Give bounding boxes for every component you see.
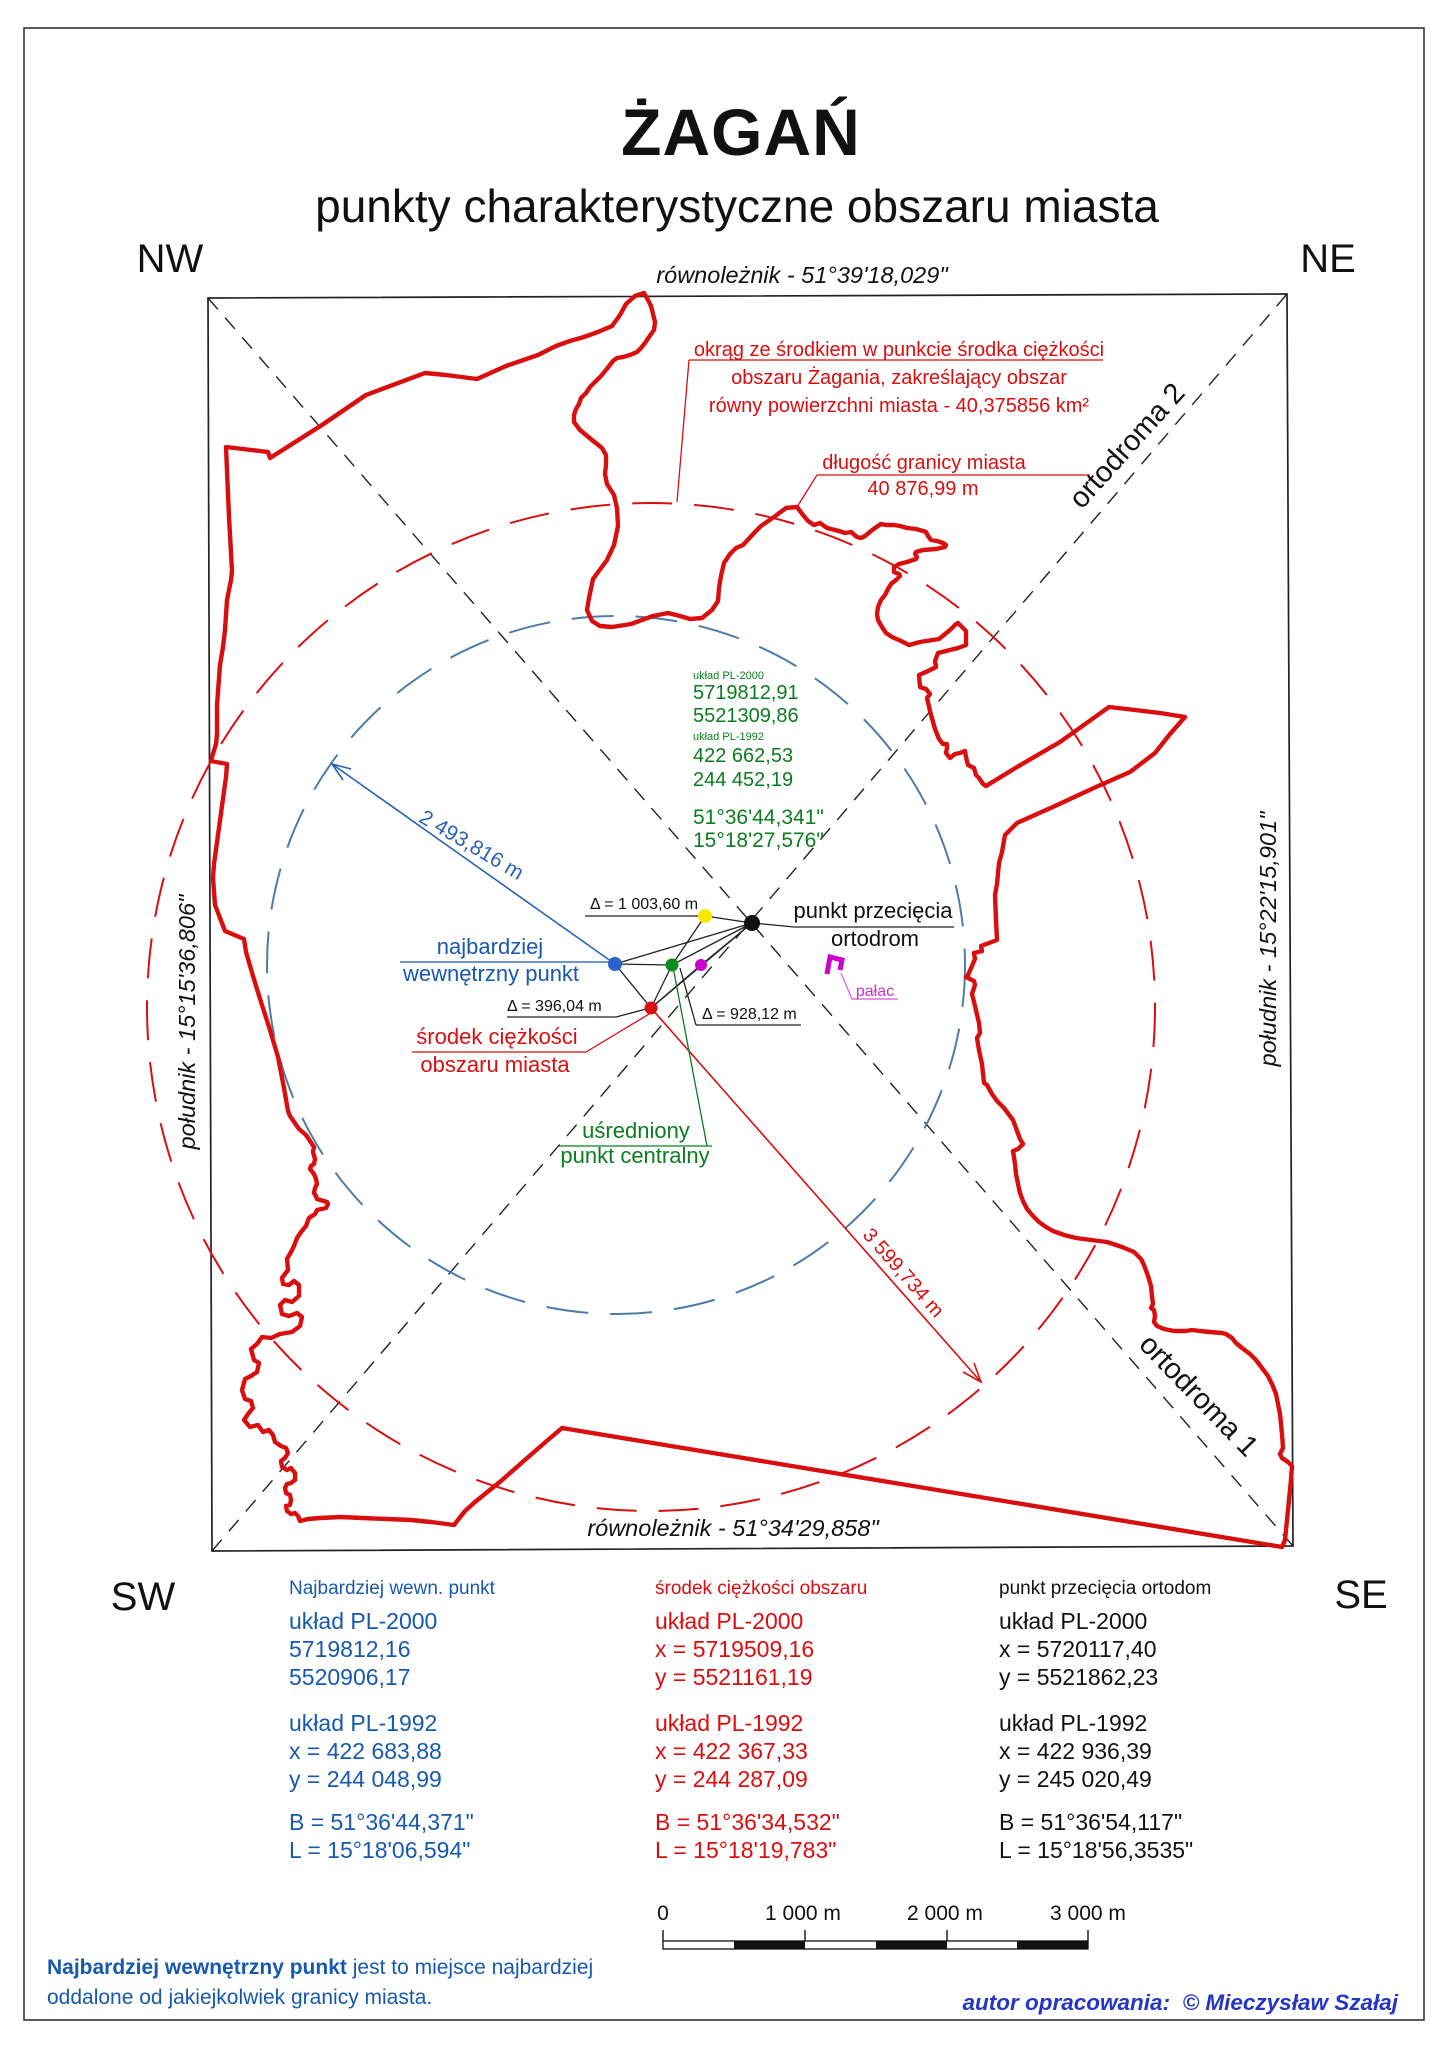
svg-text:x = 422 367,33: x = 422 367,33 [655, 1738, 808, 1764]
svg-text:układ PL-2000: układ PL-2000 [289, 1608, 437, 1634]
svg-text:x = 422 683,88: x = 422 683,88 [289, 1738, 442, 1764]
svg-text:B = 51°36'54,117": B = 51°36'54,117" [999, 1809, 1182, 1835]
svg-text:środek ciężkości: środek ciężkości [416, 1024, 577, 1049]
svg-text:5520906,17: 5520906,17 [289, 1664, 411, 1690]
svg-text:5521309,86: 5521309,86 [693, 705, 799, 727]
svg-text:Δ = 396,04 m: Δ = 396,04 m [507, 998, 602, 1015]
svg-text:ŻAGAŃ: ŻAGAŃ [621, 95, 861, 169]
svg-text:południk - 15°22'15,901": południk - 15°22'15,901" [1255, 810, 1281, 1067]
svg-text:układ PL-2000: układ PL-2000 [999, 1608, 1147, 1634]
svg-text:x = 422 936,39: x = 422 936,39 [999, 1738, 1152, 1764]
svg-text:okrąg ze środkiem w punkcie śr: okrąg ze środkiem w punkcie środka ciężk… [694, 339, 1104, 361]
svg-text:y = 5521862,23: y = 5521862,23 [999, 1664, 1158, 1690]
svg-text:długość granicy miasta: długość granicy miasta [822, 452, 1026, 474]
svg-text:SW: SW [111, 1575, 176, 1619]
svg-text:Najbardziej wewn. punkt: Najbardziej wewn. punkt [289, 1578, 496, 1599]
svg-text:równoleżnik - 51°34'29,858": równoleżnik - 51°34'29,858" [587, 1515, 880, 1541]
svg-text:422 662,53: 422 662,53 [693, 745, 793, 767]
svg-text:układ PL-1992: układ PL-1992 [693, 731, 764, 743]
svg-text:Δ = 1 003,60 m: Δ = 1 003,60 m [590, 896, 698, 913]
svg-text:0: 0 [657, 1902, 669, 1925]
svg-text:układ PL-1992: układ PL-1992 [289, 1710, 437, 1736]
svg-text:SE: SE [1334, 1573, 1387, 1617]
svg-text:y = 244 048,99: y = 244 048,99 [289, 1766, 442, 1792]
svg-text:y = 5521161,19: y = 5521161,19 [655, 1664, 813, 1690]
svg-text:x = 5720117,40: x = 5720117,40 [999, 1636, 1157, 1662]
svg-text:równy powierzchni miasta - 40,: równy powierzchni miasta - 40,375856 km² [709, 395, 1090, 417]
svg-text:5719812,91: 5719812,91 [693, 682, 799, 704]
svg-text:najbardziej: najbardziej [437, 934, 543, 959]
svg-text:Najbardziej wewnętrzny punkt j: Najbardziej wewnętrzny punkt jest to mie… [47, 1956, 593, 1979]
svg-text:układ PL-1992: układ PL-1992 [999, 1710, 1147, 1736]
svg-text:układ PL-2000: układ PL-2000 [655, 1608, 803, 1634]
svg-text:Δ = 928,12 m: Δ = 928,12 m [702, 1006, 797, 1023]
svg-text:x = 5719509,16: x = 5719509,16 [655, 1636, 814, 1662]
svg-text:oddalone od jakiejkolwiek gran: oddalone od jakiejkolwiek granicy miasta… [47, 1986, 432, 2009]
svg-text:obszaru Żagania, zakreślający: obszaru Żagania, zakreślający obszar [731, 366, 1067, 389]
svg-text:1 000 m: 1 000 m [765, 1902, 841, 1925]
svg-text:2 000 m: 2 000 m [907, 1902, 983, 1925]
svg-text:B = 51°36'34,532": B = 51°36'34,532" [655, 1809, 840, 1835]
svg-text:uśredniony: uśredniony [582, 1118, 690, 1143]
svg-text:autor opracowania: © Mieczysł: autor opracowania: © Mieczysław Szałaj [963, 1990, 1399, 2015]
svg-text:51°36'44,341": 51°36'44,341" [693, 806, 824, 829]
svg-text:3 000 m: 3 000 m [1050, 1902, 1126, 1925]
svg-text:punkty charakterystyczne obsza: punkty charakterystyczne obszaru miasta [315, 180, 1159, 232]
svg-text:B = 51°36'44,371": B = 51°36'44,371" [289, 1809, 474, 1835]
svg-text:południk - 15°15'36,806": południk - 15°15'36,806" [174, 893, 200, 1150]
svg-text:ortodrom: ortodrom [831, 926, 919, 951]
svg-text:układ PL-1992: układ PL-1992 [655, 1710, 803, 1736]
svg-text:wewnętrzny punkt: wewnętrzny punkt [402, 961, 579, 986]
svg-text:244 452,19: 244 452,19 [693, 769, 793, 791]
svg-text:NE: NE [1300, 237, 1356, 281]
svg-text:obszaru miasta: obszaru miasta [420, 1052, 570, 1077]
svg-text:40 876,99 m: 40 876,99 m [867, 478, 978, 500]
svg-text:L = 15°18'19,783": L = 15°18'19,783" [655, 1837, 836, 1863]
svg-text:NW: NW [137, 237, 204, 281]
svg-text:punkt przecięcia ortodom: punkt przecięcia ortodom [999, 1578, 1211, 1599]
svg-text:punkt przecięcia: punkt przecięcia [794, 898, 954, 923]
svg-text:L = 15°18'06,594": L = 15°18'06,594" [289, 1837, 470, 1863]
svg-text:równoleżnik - 51°39'18,029": równoleżnik - 51°39'18,029" [656, 262, 949, 288]
svg-text:punkt centralny: punkt centralny [560, 1143, 709, 1168]
svg-text:15°18'27,576": 15°18'27,576" [693, 829, 824, 852]
svg-text:układ PL-2000: układ PL-2000 [693, 670, 764, 682]
svg-text:y = 244 287,09: y = 244 287,09 [655, 1766, 808, 1792]
svg-text:pałac: pałac [856, 983, 894, 1000]
svg-text:środek ciężkości obszaru: środek ciężkości obszaru [655, 1578, 867, 1599]
svg-text:5719812,16: 5719812,16 [289, 1636, 411, 1662]
svg-text:L = 15°18'56,3535": L = 15°18'56,3535" [999, 1837, 1193, 1863]
svg-text:y = 245 020,49: y = 245 020,49 [999, 1766, 1152, 1792]
